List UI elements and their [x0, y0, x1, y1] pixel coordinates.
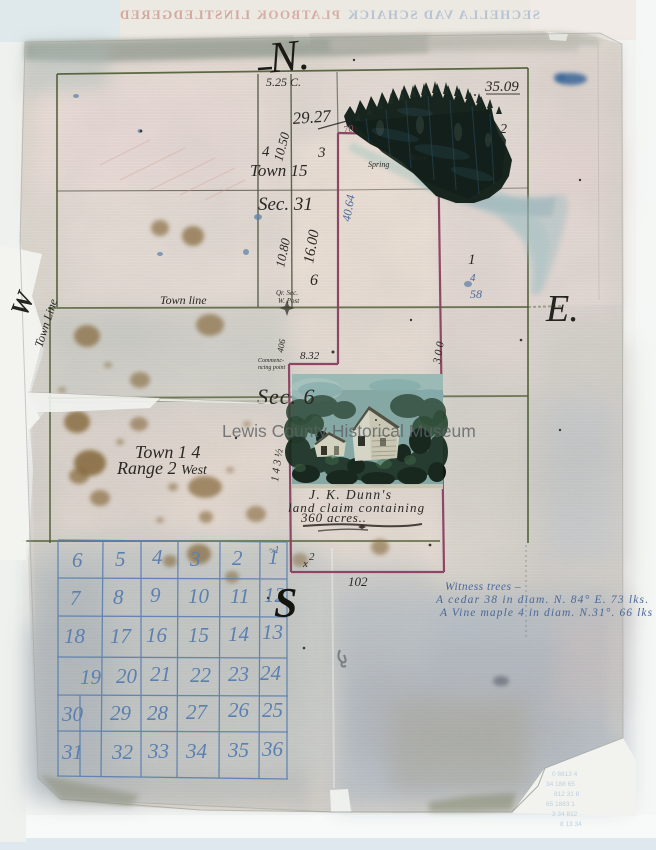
svg-text:20: 20 [116, 664, 138, 688]
svg-text:W. Post: W. Post [278, 297, 300, 305]
svg-text:22: 22 [190, 663, 212, 687]
svg-text:9: 9 [150, 583, 161, 607]
svg-text:19: 19 [80, 665, 102, 689]
svg-text:30: 30 [61, 702, 84, 726]
svg-text:70: 70 [343, 123, 355, 136]
svg-text:11: 11 [230, 584, 249, 608]
svg-text:29: 29 [110, 701, 132, 725]
svg-text:360 acres..: 360 acres.. [300, 510, 367, 525]
svg-text:2: 2 [309, 551, 315, 563]
svg-text:32: 32 [111, 740, 134, 764]
svg-text:102: 102 [348, 574, 368, 589]
svg-text:~1: ~1 [269, 545, 279, 556]
svg-text:A Vine maple 4 in diam. N.31°.: A Vine maple 4 in diam. N.31°. 66 lks [439, 607, 653, 619]
svg-text:4: 4 [262, 144, 270, 160]
svg-text:2: 2 [500, 122, 507, 137]
svg-text:26: 26 [228, 698, 250, 722]
svg-text:Town line: Town line [160, 293, 207, 307]
svg-text:4: 4 [152, 545, 163, 569]
svg-text:SECHELLA VAD SCHAICK: SECHELLA VAD SCHAICK [346, 7, 540, 22]
svg-text:0 8813 4: 0 8813 4 [552, 771, 578, 778]
svg-text:28: 28 [147, 701, 169, 725]
svg-text:34 188 65: 34 188 65 [546, 781, 575, 788]
svg-text:4: 4 [470, 272, 476, 284]
svg-text:6: 6 [310, 272, 318, 289]
svg-text:Commenc-: Commenc- [258, 358, 284, 364]
svg-text:E.: E. [545, 288, 579, 330]
svg-text:812 31 8: 812 31 8 [554, 791, 580, 798]
svg-text:5: 5 [115, 547, 126, 571]
svg-text:29.27: 29.27 [292, 106, 333, 128]
svg-text:ncing point: ncing point [258, 365, 285, 371]
svg-text:Spring: Spring [368, 160, 389, 169]
svg-text:Sec. 6: Sec. 6 [257, 384, 316, 409]
svg-text:S: S [274, 581, 297, 627]
svg-text:LINSTLEDGERED: LINSTLEDGERED [119, 7, 250, 22]
svg-text:Sec. 31: Sec. 31 [258, 194, 313, 215]
svg-text:3: 3 [189, 547, 201, 571]
svg-text:21: 21 [150, 662, 171, 686]
svg-text:Town 15: Town 15 [250, 161, 307, 180]
svg-text:16: 16 [146, 623, 168, 647]
svg-text:18: 18 [64, 624, 86, 648]
svg-text:65 1883 1: 65 1883 1 [546, 801, 575, 808]
svg-text:2: 2 [232, 546, 243, 570]
svg-text:34: 34 [185, 739, 208, 763]
svg-text:Lewis County Historical Museum: Lewis County Historical Museum [222, 421, 476, 441]
svg-text:14: 14 [228, 622, 250, 646]
svg-text:15: 15 [188, 623, 209, 647]
svg-text:3 34 812: 3 34 812 [552, 811, 578, 818]
svg-text:17: 17 [110, 624, 133, 648]
svg-text:x: x [302, 558, 308, 570]
svg-text:25: 25 [262, 698, 283, 722]
svg-text:58: 58 [470, 287, 482, 301]
svg-text:1: 1 [468, 252, 476, 268]
svg-text:Witness trees –: Witness trees – [445, 581, 521, 593]
svg-text:Brook: Brook [410, 154, 428, 162]
svg-text:33: 33 [147, 739, 169, 763]
svg-text:A cedar 38 in diam. N. 84° E.: A cedar 38 in diam. N. 84° E. 73 lks. [435, 594, 649, 606]
svg-text:23: 23 [228, 662, 249, 686]
svg-text:10: 10 [188, 584, 210, 608]
svg-text:8.32: 8.32 [300, 350, 320, 362]
svg-text:Qr. Sec.: Qr. Sec. [276, 289, 298, 297]
svg-text:35: 35 [227, 738, 249, 762]
svg-text:PLATBOOK: PLATBOOK [255, 7, 340, 22]
svg-text:8 13 34: 8 13 34 [560, 821, 582, 828]
svg-text:3: 3 [317, 145, 326, 161]
svg-text:24: 24 [260, 661, 282, 685]
svg-text:36: 36 [261, 737, 284, 761]
svg-text:8: 8 [113, 585, 124, 609]
svg-text:6: 6 [72, 548, 83, 572]
svg-text:35.09: 35.09 [484, 79, 519, 95]
svg-text:31: 31 [61, 740, 83, 764]
svg-text:27: 27 [186, 700, 209, 724]
svg-text:7: 7 [70, 586, 82, 610]
